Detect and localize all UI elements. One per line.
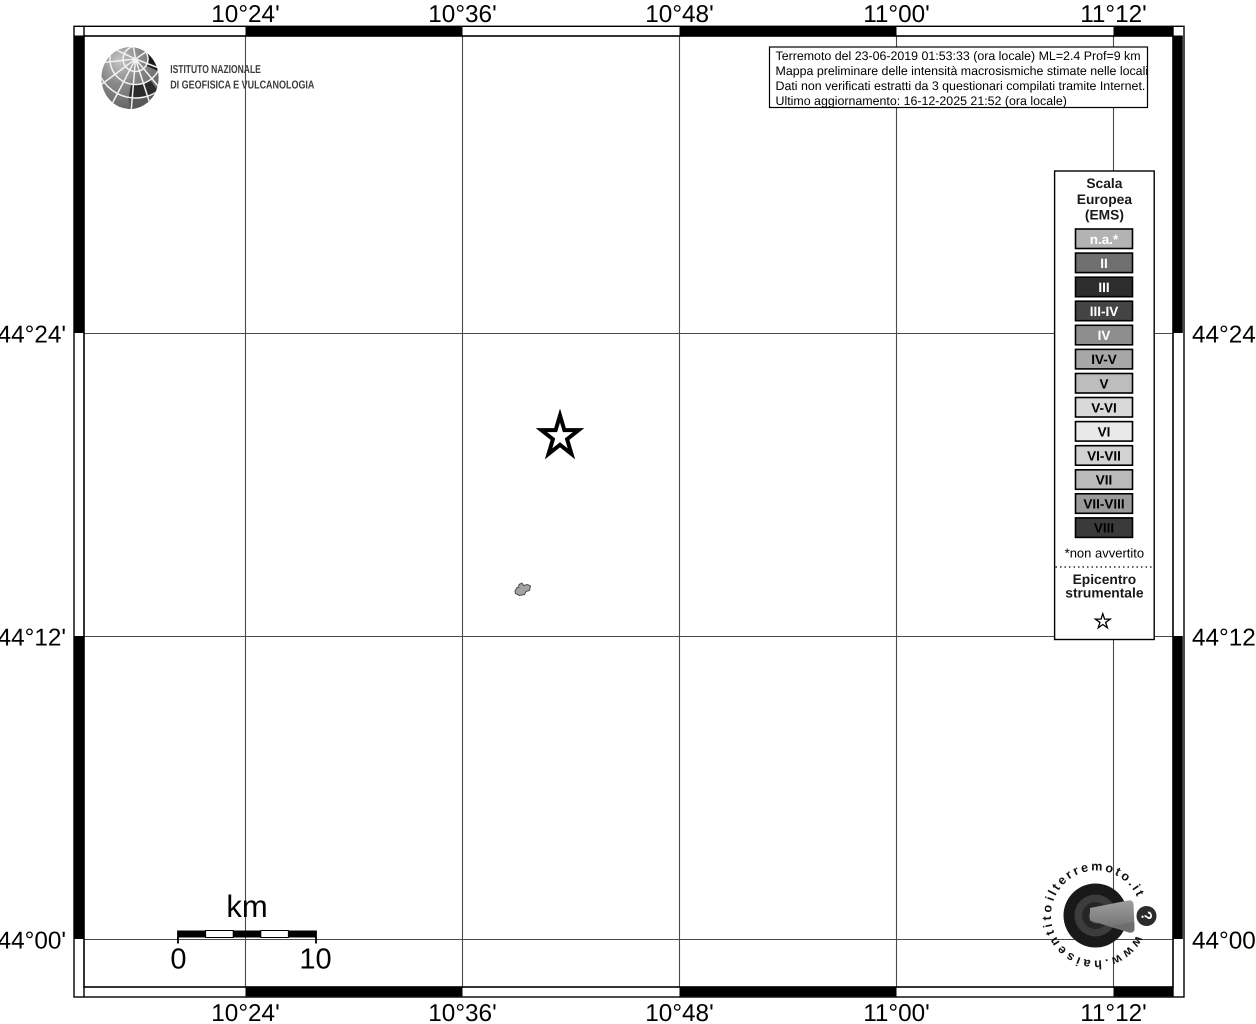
- svg-text:Scala: Scala: [1086, 176, 1122, 191]
- svg-text:Mappa preliminare delle intens: Mappa preliminare delle intensità macros…: [776, 64, 1159, 78]
- svg-text:44°12': 44°12': [1192, 625, 1256, 652]
- svg-text:V: V: [1099, 376, 1108, 391]
- svg-text:V-VI: V-VI: [1091, 400, 1117, 415]
- svg-text:ISTITUTO NAZIONALE: ISTITUTO NAZIONALE: [170, 64, 261, 76]
- svg-text:VII-VIII: VII-VIII: [1083, 497, 1124, 512]
- svg-text:44°24': 44°24': [1192, 322, 1256, 349]
- svg-text:strumentale: strumentale: [1065, 586, 1144, 601]
- svg-text:VI: VI: [1098, 424, 1111, 439]
- svg-text:n.a.*: n.a.*: [1090, 232, 1119, 247]
- svg-text:VIII: VIII: [1094, 521, 1114, 536]
- svg-text:10°24': 10°24': [211, 1, 279, 28]
- svg-text:0: 0: [170, 944, 186, 976]
- svg-text:III-IV: III-IV: [1090, 304, 1119, 319]
- svg-text:11°00': 11°00': [863, 1000, 930, 1024]
- svg-text:44°24': 44°24': [0, 322, 66, 349]
- svg-text:III: III: [1098, 280, 1109, 295]
- svg-text:10: 10: [299, 944, 331, 976]
- svg-text:44°00': 44°00': [0, 928, 66, 955]
- svg-text:DI GEOFISICA E VULCANOLOGIA: DI GEOFISICA E VULCANOLOGIA: [170, 79, 314, 91]
- svg-text:10°48': 10°48': [645, 1000, 713, 1024]
- svg-text:11°12': 11°12': [1080, 1, 1147, 28]
- svg-text:10°24': 10°24': [211, 1000, 279, 1024]
- svg-text:VII: VII: [1096, 473, 1113, 488]
- svg-text:km: km: [226, 889, 267, 924]
- svg-text:11°00': 11°00': [863, 1, 930, 28]
- svg-text:Terremoto del 23-06-2019 01:53: Terremoto del 23-06-2019 01:53:33 (ora l…: [776, 49, 1141, 63]
- svg-text:44°12': 44°12': [0, 625, 66, 652]
- svg-text:10°36': 10°36': [428, 1, 496, 28]
- svg-text:VI-VII: VI-VII: [1087, 449, 1121, 464]
- svg-text:10°36': 10°36': [428, 1000, 496, 1024]
- svg-text:IV-V: IV-V: [1091, 352, 1117, 367]
- svg-text:*non avvertito: *non avvertito: [1065, 546, 1145, 561]
- svg-text:10°48': 10°48': [645, 1, 713, 28]
- svg-text:IV: IV: [1098, 328, 1111, 343]
- svg-text:11°12': 11°12': [1080, 1000, 1147, 1024]
- svg-text:44°00': 44°00': [1192, 928, 1256, 955]
- svg-text:Dati non verificati estratti d: Dati non verificati estratti da 3 questi…: [776, 79, 1146, 93]
- svg-text:Europea: Europea: [1077, 192, 1133, 207]
- svg-text:Ultimo aggiornamento: 16-12-20: Ultimo aggiornamento: 16-12-2025 21:52 (…: [776, 94, 1067, 108]
- svg-text:II: II: [1100, 256, 1108, 271]
- svg-text:(EMS): (EMS): [1085, 208, 1124, 223]
